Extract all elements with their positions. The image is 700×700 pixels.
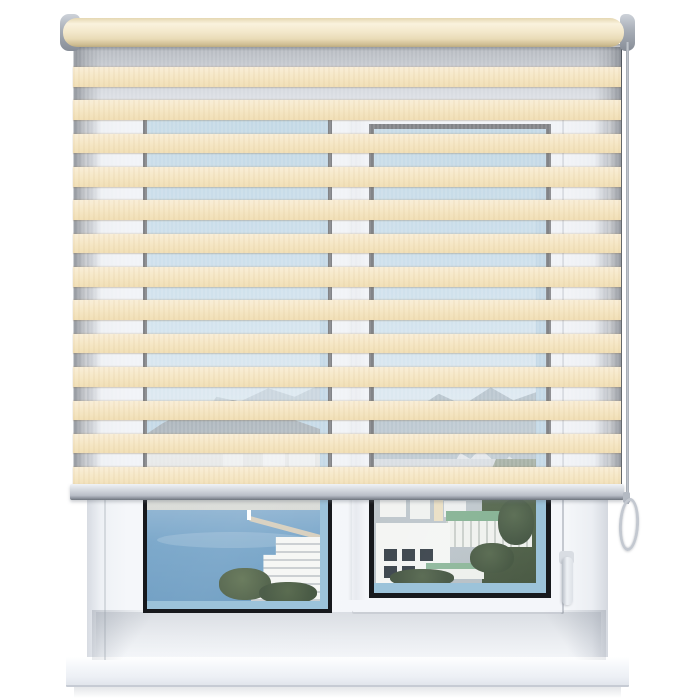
fabric-day-stripe <box>73 434 621 454</box>
fabric-day-stripe <box>73 234 621 254</box>
chain-loop <box>618 498 641 552</box>
fabric-day-stripe <box>73 300 621 320</box>
fabric-day-stripe <box>73 367 621 387</box>
fabric-day-stripe <box>73 401 621 421</box>
product-image-zebra-blind-window <box>0 0 700 700</box>
fabric-day-stripe <box>73 67 621 87</box>
recess-corner-left <box>92 610 162 660</box>
fabric-day-stripe <box>73 200 621 220</box>
fabric-day-stripe <box>73 267 621 287</box>
control-chain <box>626 42 629 504</box>
fabric-day-stripe <box>73 334 621 354</box>
window-handle <box>562 557 573 605</box>
fabric-day-stripe <box>73 134 621 154</box>
fabric-day-stripe <box>73 167 621 187</box>
frame-recess-shadow <box>96 612 601 660</box>
window-sill <box>66 657 629 687</box>
recess-corner-right <box>536 610 606 660</box>
blind-fabric-sheer <box>73 47 621 486</box>
blind-bottom-bar <box>70 484 624 500</box>
roller-tube <box>63 18 624 47</box>
sill-shadow <box>74 687 621 698</box>
fabric-day-stripe <box>73 100 621 120</box>
